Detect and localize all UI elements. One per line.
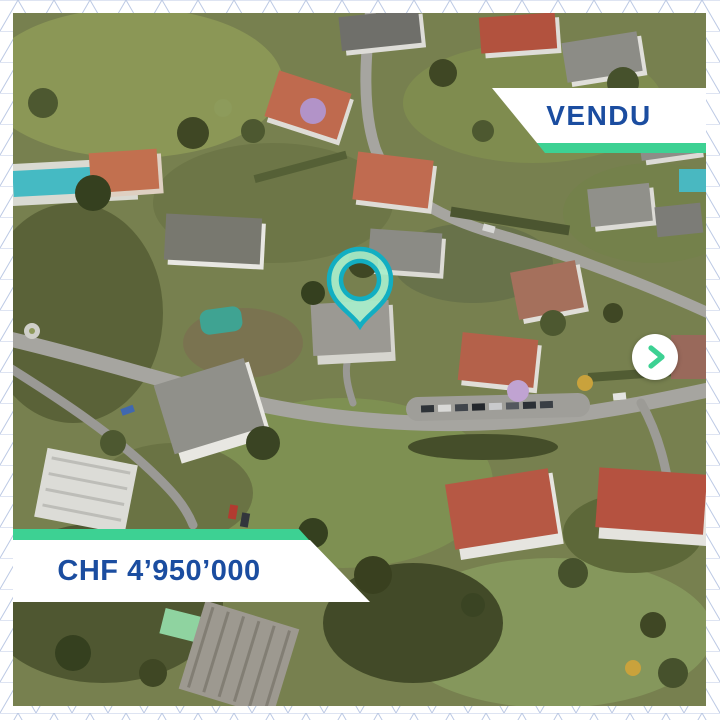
price-label: CHF 4’950’000 (13, 540, 305, 602)
subject-building (311, 300, 396, 365)
next-button[interactable] (632, 334, 678, 380)
listing-card: VENDU CHF 4’950’000 (0, 0, 720, 720)
listing-photo: VENDU CHF 4’950’000 (13, 13, 706, 706)
chevron-right-icon (642, 344, 668, 370)
price-banner: CHF 4’950’000 (13, 529, 370, 602)
status-banner: VENDU (492, 88, 706, 153)
status-label: VENDU (492, 88, 706, 143)
